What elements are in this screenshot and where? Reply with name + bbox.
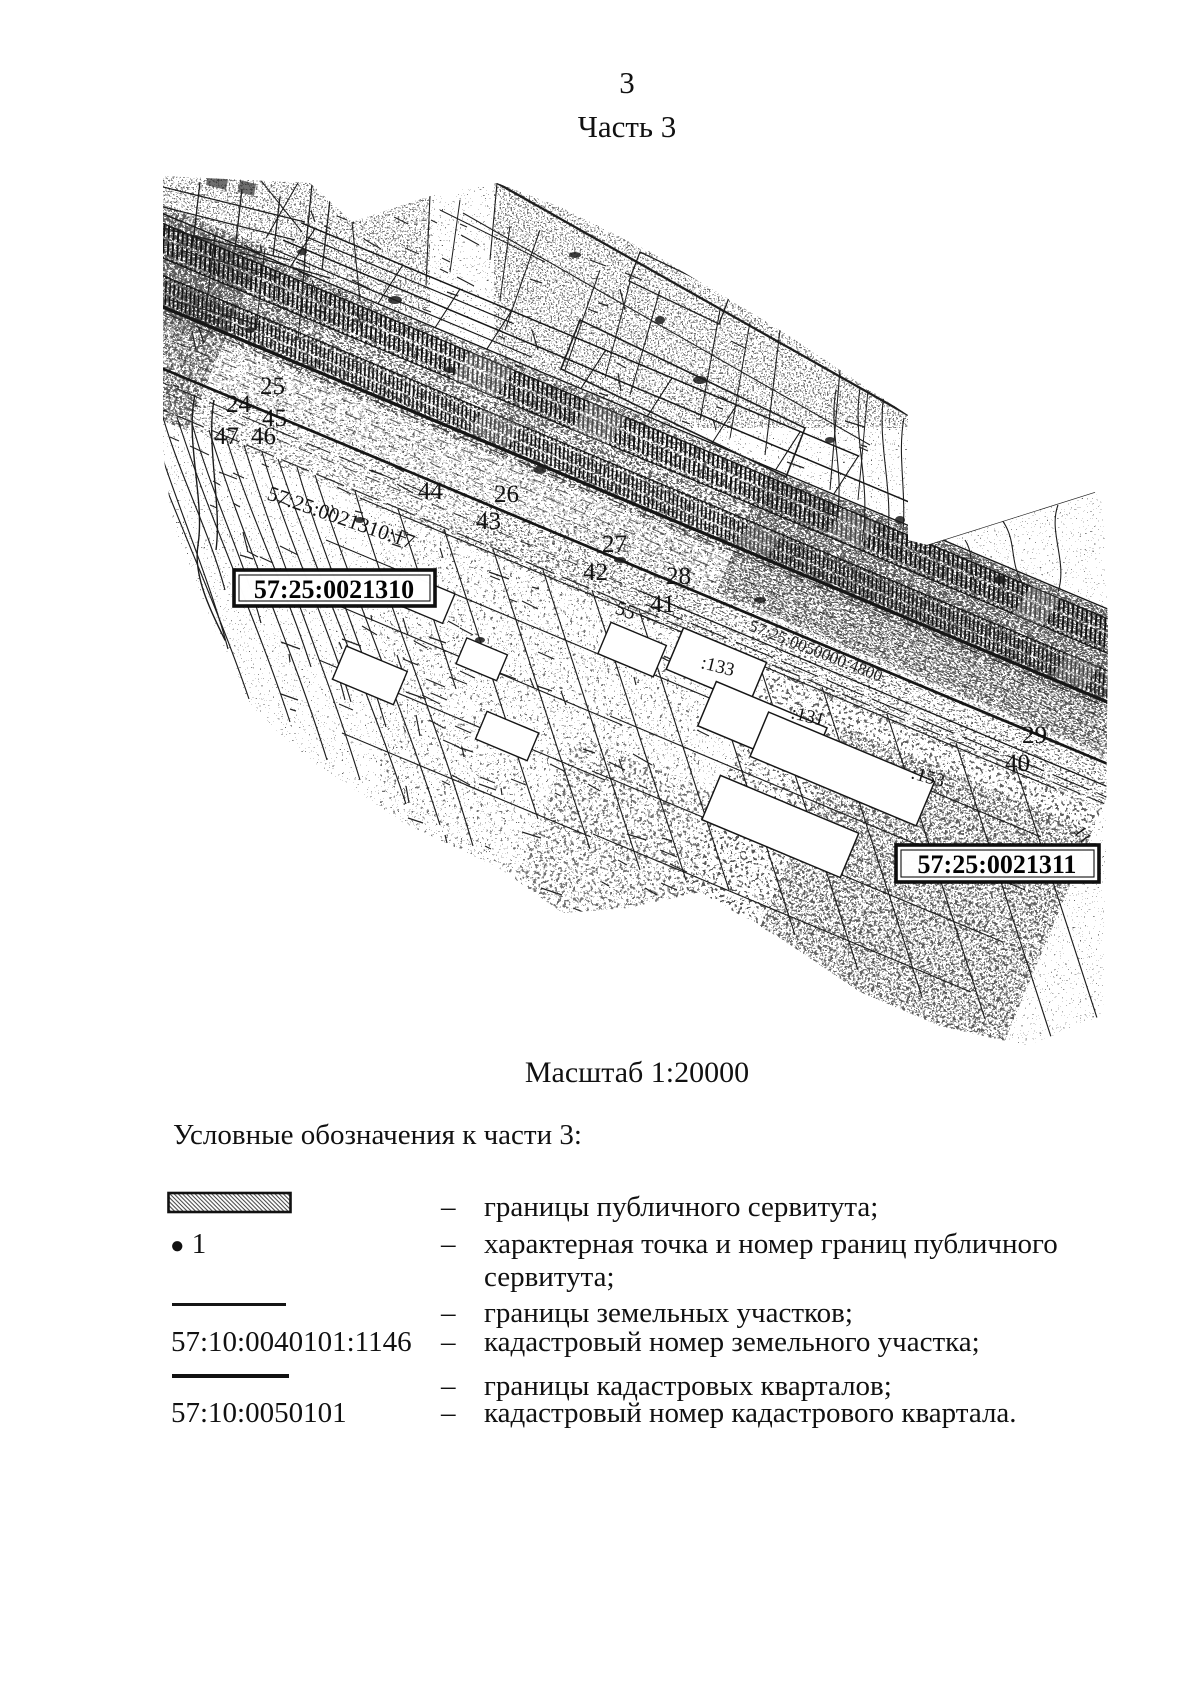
svg-text:26: 26 <box>494 481 519 508</box>
svg-text:57:25:0021311: 57:25:0021311 <box>918 850 1077 879</box>
svg-text:27: 27 <box>602 531 627 558</box>
svg-text:41: 41 <box>650 591 675 618</box>
svg-text:44: 44 <box>418 478 444 505</box>
svg-text:42: 42 <box>583 559 608 586</box>
svg-text:47: 47 <box>214 423 239 450</box>
svg-text:46: 46 <box>251 423 276 450</box>
svg-text:29: 29 <box>1022 722 1047 749</box>
svg-text:24: 24 <box>226 391 252 418</box>
svg-text:43: 43 <box>476 508 501 535</box>
svg-text:40: 40 <box>1005 750 1030 777</box>
svg-text:57:25:0021310: 57:25:0021310 <box>254 575 414 604</box>
svg-text:25: 25 <box>260 373 285 400</box>
svg-text:28: 28 <box>666 563 691 590</box>
